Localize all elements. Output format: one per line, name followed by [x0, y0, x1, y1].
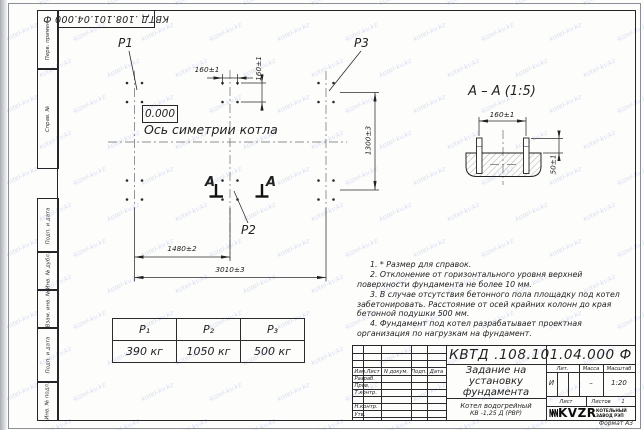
dim-section-protrusion: 50±1: [549, 145, 558, 185]
load-header-p1: P₁: [113, 319, 177, 341]
technical-notes: 1. * Размер для справок. 2. Отклонение о…: [357, 260, 633, 339]
loads-table-header-row: P₁ P₂ P₃: [113, 319, 305, 341]
note-1: 1. * Размер для справок.: [357, 260, 633, 270]
note-2: 2. Отклонение от горизонтального уровня …: [357, 270, 633, 290]
tb-sheet-label: Лист: [546, 399, 586, 405]
tb-row-ncontrol: Н.контр.: [355, 404, 378, 410]
tb-row-tcontrol: Т.контр.: [355, 390, 377, 396]
tb-sheets-label: Листов: [586, 399, 616, 405]
elevation-mark: 0.000: [142, 105, 178, 123]
kvzr-logo-caption: КОТЕЛЬНЫЙ ЗАВОД РЭП: [596, 408, 634, 418]
tb-col-date: Дата: [427, 369, 446, 375]
tb-row-developed: Разраб.: [355, 376, 375, 382]
load-label-p2: P2: [241, 223, 256, 237]
drawing-sheet: kotel-kv.kzkotel-kv.kzkotel-kv.kzkotel-k…: [0, 0, 644, 430]
section-view-title: А – А (1:5): [452, 84, 552, 99]
title-block: Изм.Лист N докум. Подп. Дата Разраб. Про…: [352, 345, 636, 421]
load-value-p1: 390 кг: [113, 341, 177, 363]
note-3: 3. В случае отсутствия бетонного пола пл…: [357, 290, 633, 320]
tb-product: Котел водогрейный КВ -1,25 Д (РВР): [446, 398, 546, 420]
tb-mass-value: –: [579, 379, 603, 387]
tb-drawing-number: КВТД .108.101.04.000 Ф: [446, 346, 635, 364]
format-label: Формат А3: [588, 420, 644, 427]
kvzr-logo-text: KVZR: [558, 406, 597, 420]
dim-total-length: 3010±3: [205, 265, 255, 274]
load-label-p3: P3: [354, 36, 369, 50]
load-label-p1: P1: [118, 36, 133, 50]
load-value-p3: 500 кг: [241, 341, 305, 363]
loads-table-value-row: 390 кг 1050 кг 500 кг: [113, 341, 305, 363]
tb-lit-value: И: [546, 379, 557, 387]
load-header-p2: P₂: [177, 319, 241, 341]
dim-bolt-vertical: 160±1: [254, 53, 263, 84]
dim-mid-span: 1480±2: [157, 244, 207, 253]
tb-scale-label: Масштаб: [603, 366, 635, 372]
tb-col-izm: Изм.Лист: [353, 369, 381, 375]
tb-col-doc: N докум.: [381, 369, 411, 375]
dim-foundation-width: 1300±3: [364, 121, 373, 161]
load-header-p3: P₃: [241, 319, 305, 341]
load-value-p2: 1050 кг: [177, 341, 241, 363]
tb-lit-label: Лит.: [546, 366, 579, 372]
tb-sheets-value: 1: [616, 399, 630, 405]
tb-row-checked: Пров.: [355, 383, 370, 389]
section-letter-right: А: [264, 175, 278, 190]
tb-row-approved: Утв.: [355, 412, 366, 418]
tb-col-sign: Подп.: [411, 369, 427, 375]
tb-scale-value: 1:20: [603, 379, 635, 387]
tb-document-title: Задание на установку фундамента: [446, 364, 546, 398]
dim-bolt-horizontal: 160±1: [187, 65, 227, 74]
tb-product-line1: Котел водогрейный: [460, 402, 531, 410]
loads-table: P₁ P₂ P₃ 390 кг 1050 кг 500 кг: [112, 318, 305, 363]
section-letter-left: А: [203, 175, 217, 190]
boiler-axis-label: Ось симетрии котла: [144, 122, 278, 137]
tb-mass-label: Масса: [579, 366, 603, 372]
tb-product-line2: КВ -1,25 Д (РВР): [470, 410, 522, 417]
note-4: 4. Фундамент под котел разрабатывает про…: [357, 319, 633, 339]
dim-section-bolt-spacing: 160±1: [482, 110, 522, 119]
